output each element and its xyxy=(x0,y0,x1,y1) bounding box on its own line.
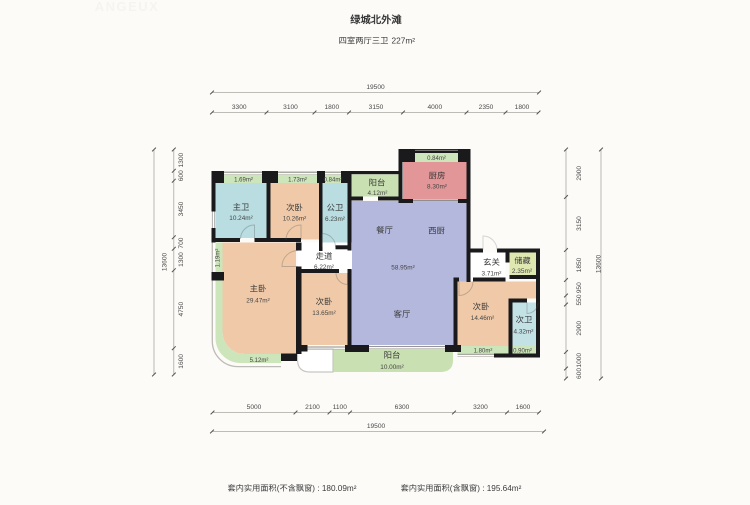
svg-text:600: 600 xyxy=(576,368,583,379)
svg-text:1100: 1100 xyxy=(333,404,348,411)
svg-text:1.19m²: 1.19m² xyxy=(216,249,222,268)
svg-text:13600: 13600 xyxy=(162,253,169,272)
svg-text:1800: 1800 xyxy=(324,104,339,111)
svg-text:3150: 3150 xyxy=(369,104,384,111)
svg-text:1.80m²: 1.80m² xyxy=(474,348,493,354)
svg-text:10.00m²: 10.00m² xyxy=(380,364,403,371)
svg-text:1300: 1300 xyxy=(178,252,185,267)
svg-text:950: 950 xyxy=(576,282,583,293)
svg-text:227m²: 227m² xyxy=(392,35,416,45)
svg-text:1.73m²: 1.73m² xyxy=(288,177,307,183)
svg-text:6.22m²: 6.22m² xyxy=(314,264,334,271)
svg-text:4750: 4750 xyxy=(178,302,185,317)
svg-text:0.84m²: 0.84m² xyxy=(427,156,446,162)
svg-text:3300: 3300 xyxy=(232,104,247,111)
svg-text:10.24m²: 10.24m² xyxy=(229,215,252,222)
svg-text:13600: 13600 xyxy=(595,255,602,274)
svg-text:6300: 6300 xyxy=(395,404,410,411)
svg-text:3150: 3150 xyxy=(576,216,583,231)
svg-text:10.26m²: 10.26m² xyxy=(283,216,306,223)
svg-text:0.84m²: 0.84m² xyxy=(324,177,343,183)
svg-text:1600: 1600 xyxy=(516,404,531,411)
svg-text:3100: 3100 xyxy=(283,104,298,111)
svg-text:3.71m²: 3.71m² xyxy=(482,270,502,277)
svg-text:2900: 2900 xyxy=(576,321,583,336)
svg-text:4000: 4000 xyxy=(427,104,442,111)
svg-text:3200: 3200 xyxy=(473,404,488,411)
svg-text:2900: 2900 xyxy=(576,166,583,181)
svg-text:600: 600 xyxy=(178,170,185,181)
svg-text:3450: 3450 xyxy=(178,201,185,216)
svg-text:2350: 2350 xyxy=(479,104,494,111)
svg-text:1.69m²: 1.69m² xyxy=(234,177,253,183)
svg-text:1800: 1800 xyxy=(515,104,530,111)
svg-text:14.46m²: 14.46m² xyxy=(471,315,494,322)
svg-text:) : 180.09m²: ) : 180.09m² xyxy=(312,484,356,493)
svg-text:5.12m²: 5.12m² xyxy=(250,358,269,364)
svg-text:4.32m²: 4.32m² xyxy=(514,328,534,335)
svg-text:700: 700 xyxy=(178,237,185,248)
svg-text:6.23m²: 6.23m² xyxy=(325,216,345,223)
svg-text:1850: 1850 xyxy=(576,257,583,272)
svg-text:8.30m²: 8.30m² xyxy=(427,183,447,190)
svg-text:19500: 19500 xyxy=(367,423,386,430)
svg-text:5000: 5000 xyxy=(247,404,262,411)
svg-text:) : 195.64m²: ) : 195.64m² xyxy=(477,484,521,493)
svg-text:2.35m²: 2.35m² xyxy=(512,268,533,275)
svg-text:4.12m²: 4.12m² xyxy=(368,190,388,197)
svg-text:58.95m²: 58.95m² xyxy=(391,265,414,272)
svg-text:13.65m²: 13.65m² xyxy=(312,310,335,317)
svg-text:1000: 1000 xyxy=(576,353,583,368)
svg-text:(: ( xyxy=(277,484,280,493)
svg-text:1300: 1300 xyxy=(178,152,185,167)
svg-text:29.47m²: 29.47m² xyxy=(246,297,269,304)
svg-text:1600: 1600 xyxy=(178,354,185,369)
svg-text:(: ( xyxy=(450,484,453,493)
svg-text:ANGEUX: ANGEUX xyxy=(95,0,160,14)
svg-text:19500: 19500 xyxy=(366,84,385,91)
svg-text:2100: 2100 xyxy=(305,404,320,411)
svg-text:0.90m²: 0.90m² xyxy=(513,348,532,354)
svg-text:550: 550 xyxy=(576,294,583,305)
